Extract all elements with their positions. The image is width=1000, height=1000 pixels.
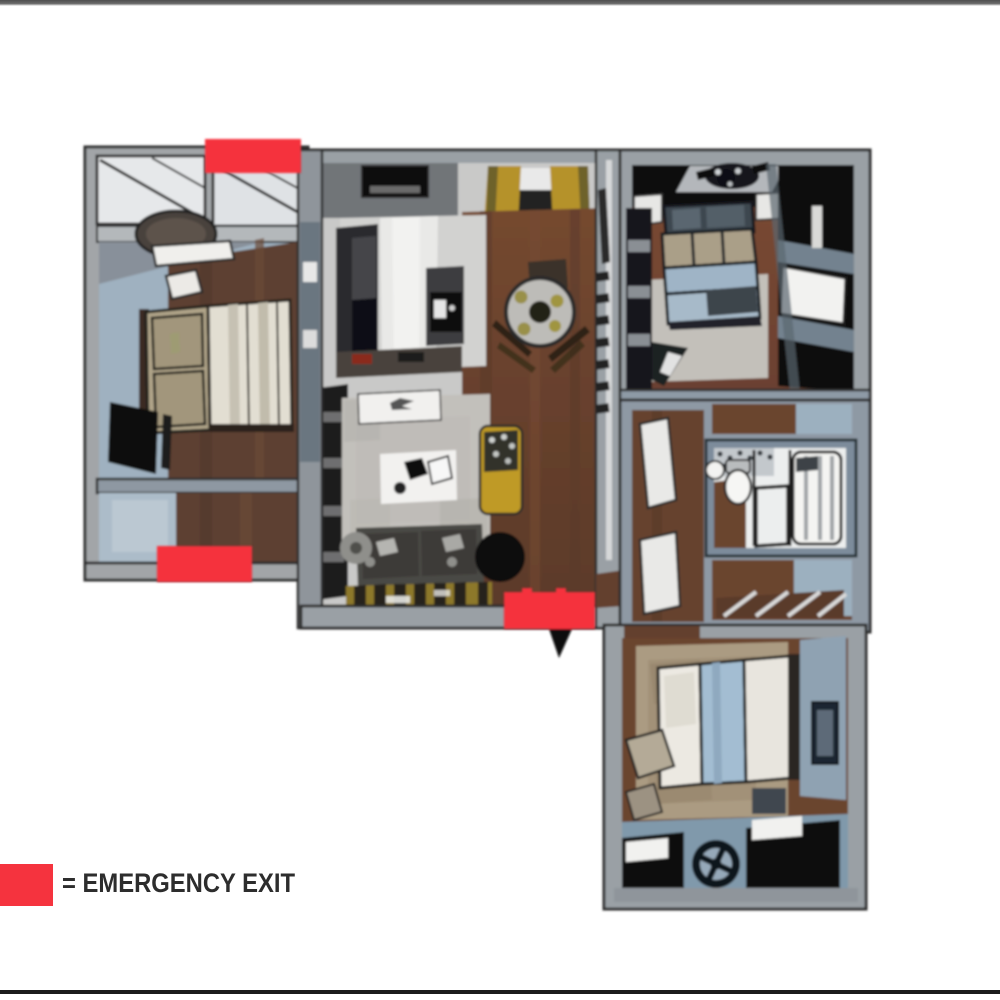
svg-text:= EMERGENCY EXIT: = EMERGENCY EXIT: [62, 868, 295, 898]
